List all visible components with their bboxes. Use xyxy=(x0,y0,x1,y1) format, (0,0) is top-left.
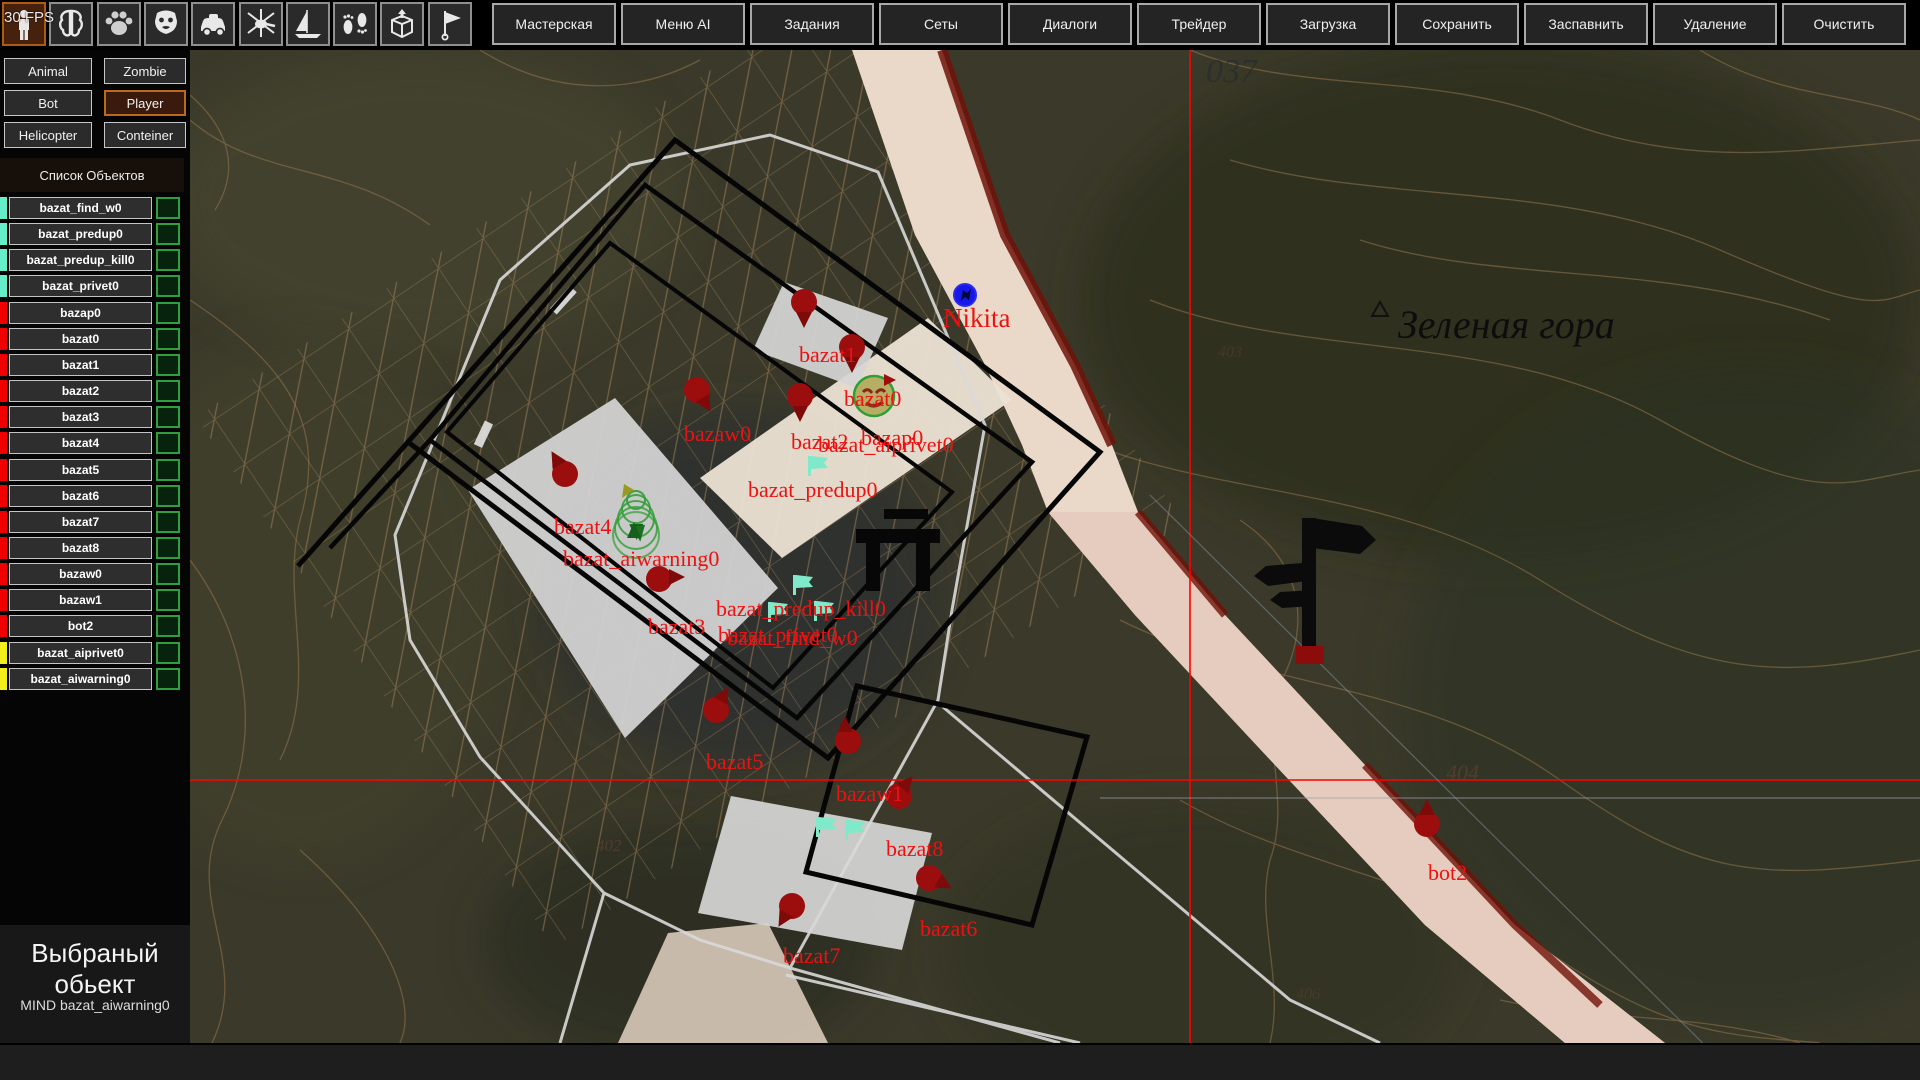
object-row: bazat7 xyxy=(0,511,190,533)
contour-elevation-label: 402 xyxy=(596,836,622,855)
fps-counter: 30 FPS xyxy=(4,9,54,26)
toolbar-footprints-icon[interactable] xyxy=(333,2,377,46)
object-status-strip xyxy=(0,432,7,454)
object-status-strip xyxy=(0,642,7,664)
toolbar-zombie-icon[interactable] xyxy=(144,2,188,46)
bottom-bar xyxy=(0,1043,1920,1080)
object-status-strip xyxy=(0,511,7,533)
object-row: bazat6 xyxy=(0,485,190,507)
map-label-bazaw0: bazaw0 xyxy=(684,421,751,446)
object-status-strip xyxy=(0,589,7,611)
map-viewport[interactable]: 404402403406 Зеленая гора 037 Nikitabaza… xyxy=(190,50,1920,1043)
map-label-bazat_aiprivet0: bazat_aiprivet0 xyxy=(818,432,954,457)
object-row: bazat8 xyxy=(0,537,190,559)
object-button-bazat4[interactable]: bazat4 xyxy=(9,432,152,454)
helicopter-icon xyxy=(244,7,278,41)
object-toggle-box[interactable] xyxy=(156,563,180,585)
toolbar-sailboat-icon[interactable] xyxy=(286,2,330,46)
zombie-icon xyxy=(149,7,183,41)
object-button-bot2[interactable]: bot2 xyxy=(9,615,152,637)
toolbar-car-icon[interactable] xyxy=(191,2,235,46)
toolbar-button-7[interactable]: Загрузка xyxy=(1266,3,1390,45)
map-label-bazat_predup0: bazat_predup0 xyxy=(748,477,878,502)
object-row: bazat_find_w0 xyxy=(0,197,190,219)
top-toolbar: 30 FPS МастерскаяМеню AIЗаданияСетыДиало… xyxy=(0,0,1920,50)
contour-elevation-label: 406 xyxy=(1296,986,1320,1003)
object-button-bazat1[interactable]: bazat1 xyxy=(9,354,152,376)
sailboat-icon xyxy=(291,7,325,41)
object-toggle-box[interactable] xyxy=(156,537,180,559)
selected-object-value: MIND bazat_aiwarning0 xyxy=(0,997,190,1013)
object-button-bazaw0[interactable]: bazaw0 xyxy=(9,563,152,585)
object-list-header: Список Объектов xyxy=(0,158,184,192)
object-button-bazat8[interactable]: bazat8 xyxy=(9,537,152,559)
category-button-zombie[interactable]: Zombie xyxy=(104,58,186,84)
toolbar-button-8[interactable]: Сохранить xyxy=(1395,3,1519,45)
object-toggle-box[interactable] xyxy=(156,380,180,402)
object-toggle-box[interactable] xyxy=(156,302,180,324)
object-toggle-box[interactable] xyxy=(156,249,180,271)
crate-icon xyxy=(385,7,419,41)
toolbar-button-1[interactable]: Мастерская xyxy=(492,3,616,45)
object-toggle-box[interactable] xyxy=(156,406,180,428)
object-toggle-box[interactable] xyxy=(156,511,180,533)
object-row: bazaw0 xyxy=(0,563,190,585)
brain-icon xyxy=(54,7,88,41)
mountain-name: Зеленая гора xyxy=(1398,302,1615,347)
grid-square-label: 037 xyxy=(1206,53,1259,90)
object-button-bazat5[interactable]: bazat5 xyxy=(9,459,152,481)
map-label-bazaw1: bazaw1 xyxy=(836,781,903,806)
toolbar-button-5[interactable]: Диалоги xyxy=(1008,3,1132,45)
object-toggle-box[interactable] xyxy=(156,354,180,376)
object-row: bazat0 xyxy=(0,328,190,350)
object-row: bazat_aiwarning0 xyxy=(0,668,190,690)
left-sidebar: AnimalZombieBotPlayerHelicopterConteiner… xyxy=(0,50,190,1043)
category-button-conteiner[interactable]: Conteiner xyxy=(104,122,186,148)
object-button-bazat_predup0[interactable]: bazat_predup0 xyxy=(9,223,152,245)
object-button-bazat0[interactable]: bazat0 xyxy=(9,328,152,350)
object-button-bazat_privet0[interactable]: bazat_privet0 xyxy=(9,275,152,297)
toolbar-paw-icon[interactable] xyxy=(97,2,141,46)
object-row: bazat5 xyxy=(0,459,190,481)
object-row: bazat_predup_kill0 xyxy=(0,249,190,271)
object-status-strip xyxy=(0,406,7,428)
object-row: bazat1 xyxy=(0,354,190,376)
object-toggle-box[interactable] xyxy=(156,223,180,245)
object-status-strip xyxy=(0,197,7,219)
toolbar-button-9[interactable]: Заспавнить xyxy=(1524,3,1648,45)
dayz-editor-window: { "fps_label": "30 FPS", "toolbar": { "i… xyxy=(0,0,1920,1080)
contour-elevation-label: 404 xyxy=(1446,760,1479,785)
map-label-bazat5: bazat5 xyxy=(706,749,763,774)
object-button-bazat7[interactable]: bazat7 xyxy=(9,511,152,533)
map-label-bazat_predup_kill0: bazat_predup_kill0 xyxy=(716,596,886,621)
toolbar-helicopter-icon[interactable] xyxy=(239,2,283,46)
object-row: bazat4 xyxy=(0,432,190,454)
object-row: bazat_aiprivet0 xyxy=(0,642,190,664)
map-label-bazat8: bazat8 xyxy=(886,836,943,861)
map-label-bazat_find_w0: bazat_find_w0 xyxy=(727,625,858,650)
object-toggle-box[interactable] xyxy=(156,275,180,297)
object-button-bazat_find_w0[interactable]: bazat_find_w0 xyxy=(9,197,152,219)
object-status-strip xyxy=(0,380,7,402)
object-button-bazat_predup_kill0[interactable]: bazat_predup_kill0 xyxy=(9,249,152,271)
map-label-Nikita: Nikita xyxy=(943,303,1011,333)
category-button-animal[interactable]: Animal xyxy=(4,58,92,84)
object-toggle-box[interactable] xyxy=(156,615,180,637)
map-label-bazat_aiwarning0: bazat_aiwarning0 xyxy=(563,546,719,571)
object-toggle-box[interactable] xyxy=(156,642,180,664)
object-status-strip xyxy=(0,275,7,297)
toolbar-button-2[interactable]: Меню AI xyxy=(621,3,745,45)
object-button-bazat_aiwarning0[interactable]: bazat_aiwarning0 xyxy=(9,668,152,690)
object-status-strip xyxy=(0,354,7,376)
object-status-strip xyxy=(0,223,7,245)
object-row: bazat_predup0 xyxy=(0,223,190,245)
object-status-strip xyxy=(0,563,7,585)
toolbar-button-6[interactable]: Трейдер xyxy=(1137,3,1261,45)
object-status-strip xyxy=(0,668,7,690)
object-row: bazat2 xyxy=(0,380,190,402)
object-button-bazat2[interactable]: bazat2 xyxy=(9,380,152,402)
selected-object-title: Выбраный обьект xyxy=(0,938,190,1000)
contour-elevation-label: 403 xyxy=(1218,344,1242,361)
toolbar-button-10[interactable]: Удаление xyxy=(1653,3,1777,45)
object-status-strip xyxy=(0,537,7,559)
object-toggle-box[interactable] xyxy=(156,589,180,611)
toolbar-button-3[interactable]: Задания xyxy=(750,3,874,45)
toolbar-button-11[interactable]: Очистить xyxy=(1782,3,1906,45)
object-status-strip xyxy=(0,615,7,637)
object-toggle-box[interactable] xyxy=(156,459,180,481)
object-button-bazat_aiprivet0[interactable]: bazat_aiprivet0 xyxy=(9,642,152,664)
footprints-icon xyxy=(338,7,372,41)
object-status-strip xyxy=(0,328,7,350)
mountain-label: Зеленая гора xyxy=(1372,302,1615,347)
map-label-bot2: bot2 xyxy=(1428,860,1467,885)
object-status-strip xyxy=(0,249,7,271)
object-status-strip xyxy=(0,459,7,481)
car-icon xyxy=(196,7,230,41)
category-button-bot[interactable]: Bot xyxy=(4,90,92,116)
map-label-bazat0: bazat0 xyxy=(844,386,901,411)
flag-icon xyxy=(433,7,467,41)
object-toggle-box[interactable] xyxy=(156,485,180,507)
map-label-bazat3: bazat3 xyxy=(648,614,705,639)
object-row: bazat3 xyxy=(0,406,190,428)
object-status-strip xyxy=(0,302,7,324)
object-button-bazap0[interactable]: bazap0 xyxy=(9,302,152,324)
selected-object-panel: Выбраный обьект MIND bazat_aiwarning0 xyxy=(0,925,190,1043)
object-row: bazap0 xyxy=(0,302,190,324)
category-button-player[interactable]: Player xyxy=(104,90,186,116)
category-button-helicopter[interactable]: Helicopter xyxy=(4,122,92,148)
object-status-strip xyxy=(0,485,7,507)
object-button-bazat3[interactable]: bazat3 xyxy=(9,406,152,428)
toolbar-button-4[interactable]: Сеты xyxy=(879,3,1003,45)
map-label-bazat6: bazat6 xyxy=(920,916,977,941)
map-label-bazat1: bazat1 xyxy=(799,342,856,367)
object-toggle-box[interactable] xyxy=(156,197,180,219)
map-label-bazat7: bazat7 xyxy=(783,943,840,968)
map-canvas[interactable]: 404402403406 Зеленая гора 037 Nikitabaza… xyxy=(190,50,1920,1043)
object-toggle-box[interactable] xyxy=(156,432,180,454)
object-button-bazaw1[interactable]: bazaw1 xyxy=(9,589,152,611)
object-toggle-box[interactable] xyxy=(156,328,180,350)
toolbar-flag-icon[interactable] xyxy=(428,2,472,46)
map-label-bazat4: bazat4 xyxy=(554,514,611,539)
object-row: bazaw1 xyxy=(0,589,190,611)
object-button-bazat6[interactable]: bazat6 xyxy=(9,485,152,507)
object-toggle-box[interactable] xyxy=(156,668,180,690)
object-row: bot2 xyxy=(0,615,190,637)
object-row: bazat_privet0 xyxy=(0,275,190,297)
paw-icon xyxy=(102,7,136,41)
toolbar-crate-icon[interactable] xyxy=(380,2,424,46)
toolbar-brain-icon[interactable] xyxy=(49,2,93,46)
